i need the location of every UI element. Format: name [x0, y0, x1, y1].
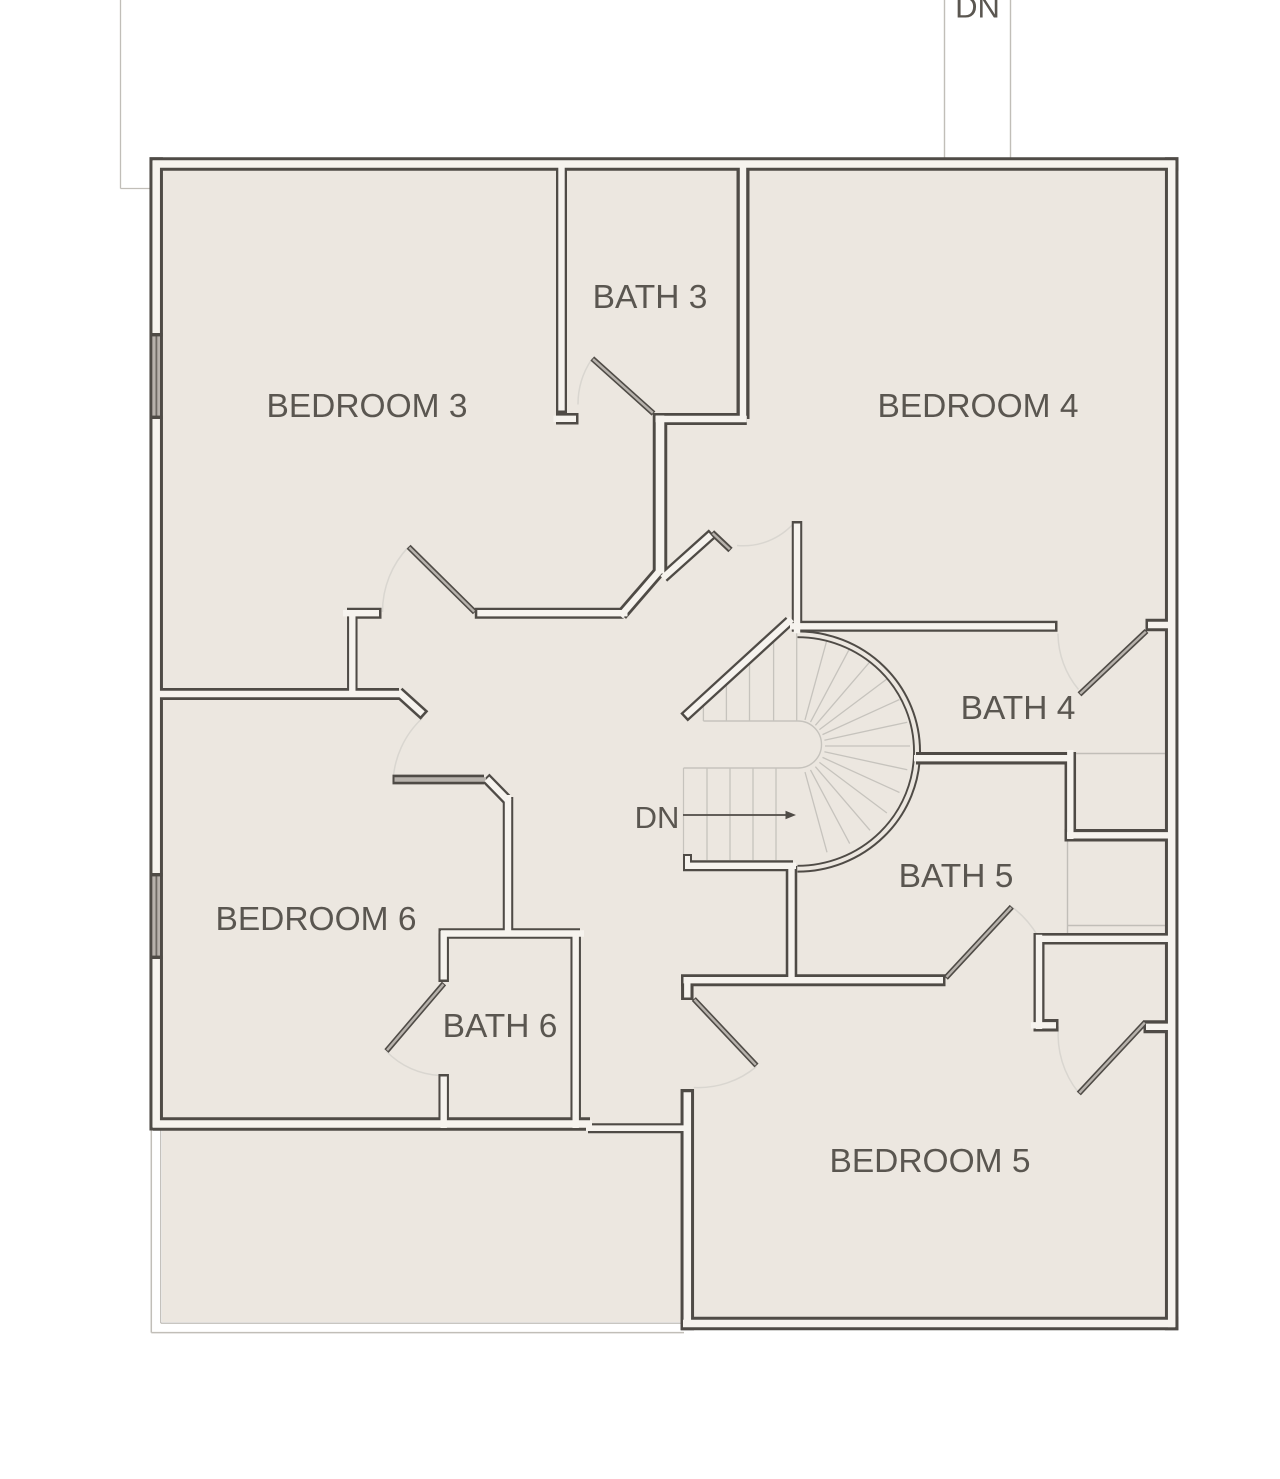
svg-text:DN: DN [635, 800, 680, 835]
svg-text:BEDROOM 5: BEDROOM 5 [829, 1143, 1030, 1180]
svg-text:BATH 6: BATH 6 [443, 1008, 558, 1045]
svg-text:BATH 5: BATH 5 [899, 858, 1014, 895]
svg-text:DN: DN [955, 0, 1000, 25]
svg-text:BEDROOM 3: BEDROOM 3 [266, 388, 467, 425]
svg-text:BEDROOM 6: BEDROOM 6 [215, 901, 416, 938]
svg-text:BATH 3: BATH 3 [593, 279, 708, 316]
svg-text:BEDROOM 4: BEDROOM 4 [877, 388, 1078, 425]
svg-text:BATH 4: BATH 4 [961, 690, 1076, 727]
